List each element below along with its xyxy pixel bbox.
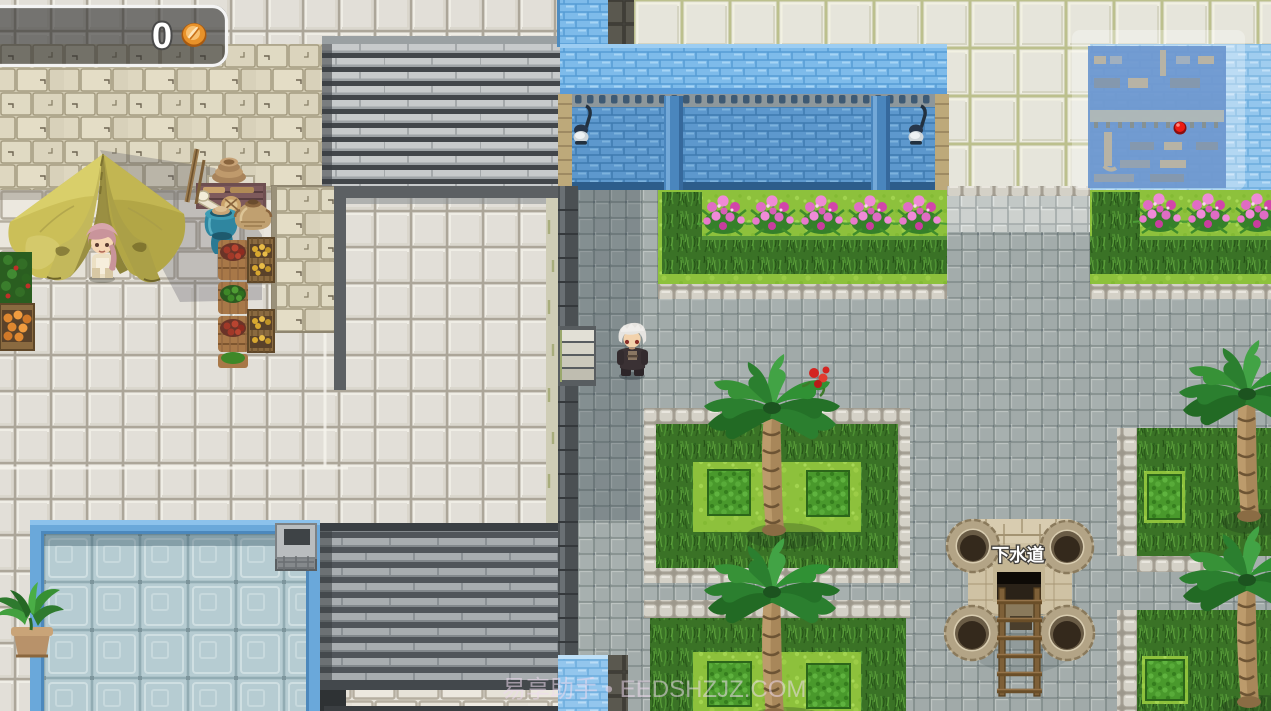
svg-text:易享助手 • EEDSHZJZ.COM: 易享助手 • EEDSHZJZ.COM — [502, 676, 806, 703]
svg-text:0: 0 — [152, 15, 172, 56]
svg-text:下水道: 下水道 — [992, 545, 1045, 565]
